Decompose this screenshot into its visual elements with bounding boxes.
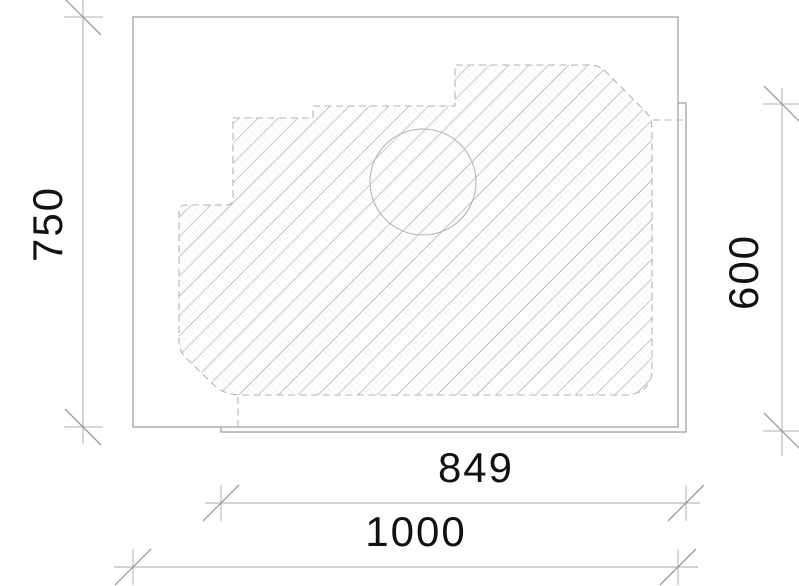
floor-plan-canvas: 750 600 849 1000 [0, 0, 799, 586]
dim-label-1000: 1000 [365, 508, 466, 555]
dim-label-750: 750 [24, 186, 71, 262]
dim-extension-600 [763, 104, 799, 431]
dim-label-600: 600 [720, 234, 767, 310]
dim-label-849: 849 [438, 444, 514, 491]
hatch-fill [170, 55, 700, 405]
dimension-left-750: 750 [24, 0, 103, 445]
hatch-diagonal-lines [170, 55, 700, 405]
cad-drawing-page: 750 600 849 1000 [0, 0, 799, 586]
dimension-right-600: 600 [720, 86, 799, 456]
dimension-bottom-1000: 1000 [114, 508, 698, 585]
